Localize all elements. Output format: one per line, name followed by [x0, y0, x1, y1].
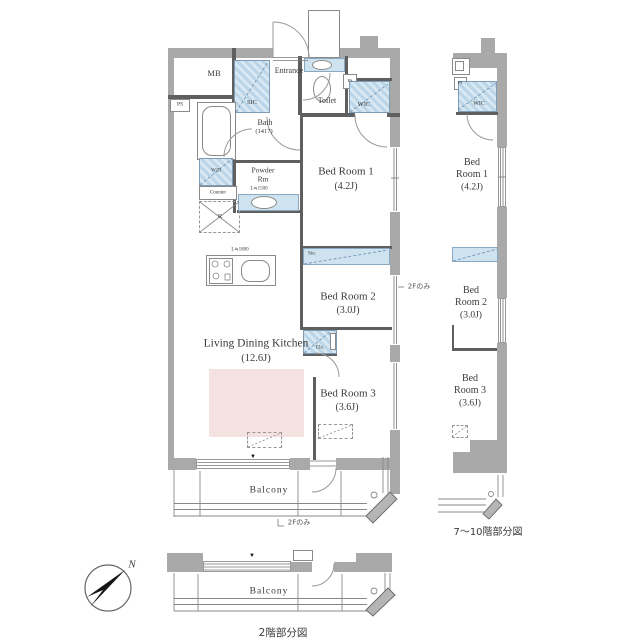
only-2f-bottom-label: 2Fのみ [288, 520, 310, 527]
powder-label-2: Rm [258, 175, 269, 183]
bp-wall-mid-b [334, 562, 356, 572]
bath-label: Bath [257, 119, 272, 127]
mb-label: MB [207, 69, 220, 78]
wall-right-b [390, 212, 400, 275]
wall-bed1-top-a [300, 113, 355, 117]
wall-right-c [390, 345, 400, 362]
bed1-label: Bed Room 1 [318, 167, 374, 178]
wall-hall-toilet [298, 56, 302, 115]
kitchen-sink [241, 260, 270, 282]
bed1-size-label: (4.2J) [334, 182, 357, 192]
kitchen-stove [209, 258, 233, 284]
floor-plan-page: MB PS SIC Entrance Toilet WIC PS Bath (1… [0, 0, 640, 640]
fridge-label: R [218, 214, 222, 221]
powder-sink [251, 196, 277, 209]
rp-ps-label: PS [457, 81, 462, 86]
powder-counter-length: L≒1500 [250, 187, 267, 192]
rp-wall-step [452, 325, 454, 351]
rp-wall-right-a [497, 68, 507, 147]
wall-clo-bottom [303, 354, 337, 356]
right-plan-balcony-railing [438, 475, 503, 519]
bp-wall-left [167, 553, 203, 572]
entrance-label: Entrance [275, 67, 303, 75]
wall-bottom-b [290, 458, 310, 470]
ldk-size-label: (12.6J) [241, 354, 270, 365]
wall-right-d [390, 430, 400, 494]
bp-wall-mid-a [291, 562, 312, 572]
wall-bath-powder [235, 160, 302, 163]
rp-bed2-label-1: Bed [463, 286, 479, 296]
rp-chimney [481, 38, 495, 53]
balcony-label: Balcony [250, 486, 289, 496]
sic-label: SIC [247, 100, 257, 107]
ps-right-label: PS [347, 79, 352, 84]
bp-window-center-marker: ▼ [249, 553, 255, 559]
only-2f-right-label: 2Fのみ [408, 284, 430, 291]
ac-space-bed3 [318, 424, 353, 439]
rp-bed2-size-label: (3.0J) [460, 311, 482, 321]
living-rug [209, 369, 304, 437]
rp-wic-label: WIC [473, 101, 485, 107]
bed2-size-label: (3.0J) [336, 306, 359, 316]
pipe-shaft [308, 10, 340, 58]
toilet-basin [312, 60, 332, 70]
rp-sto-strip [452, 247, 498, 262]
rp-wall-bottom-step [470, 440, 507, 452]
clo-fixture [330, 333, 336, 350]
rp-bed2-label-2: Room 2 [455, 298, 487, 308]
bed3-size-label: (3.6J) [335, 403, 358, 413]
wall-bed1-left [300, 117, 303, 248]
ldk-label: Living Dining Kitchen [204, 338, 309, 350]
bed3-label: Bed Room 3 [320, 389, 376, 400]
bath-size-label: (1417) [255, 129, 272, 136]
wall-top-left [168, 48, 273, 58]
bp-wall-right [356, 553, 392, 572]
rp-bed3-label-2: Room 3 [454, 386, 486, 396]
bp-caption: 2階部分図 [259, 628, 308, 639]
counter-label: Counter [210, 191, 226, 196]
kitchen-length-label: L≒1800 [231, 248, 248, 253]
rp-caption: 7〜10階部分図 [453, 528, 522, 538]
sto-label: Sto. [308, 252, 316, 257]
bathtub [202, 106, 231, 156]
toilet-label: Toilet [318, 97, 337, 105]
rp-window-bed1 [498, 147, 506, 207]
rp-fixture-inner [455, 61, 464, 71]
rp-wic-closet [458, 81, 497, 112]
sto-strip [303, 248, 390, 265]
wall-chimney [360, 36, 378, 48]
wic-label: WIC [358, 102, 371, 109]
compass-icon [85, 565, 131, 611]
rp-bed3-size-label: (3.6J) [459, 399, 481, 409]
clo-label: Clo. [316, 346, 324, 351]
bp-step [293, 550, 313, 561]
rp-ac-space [452, 425, 468, 438]
rp-bed3-label-1: Bed [462, 374, 478, 384]
rp-wall-right-b [497, 207, 507, 298]
wall-right-a [390, 55, 400, 147]
rp-bed1-label-1: Bed [464, 158, 480, 168]
wall-ldk-bed3 [313, 377, 316, 460]
rp-wall-bottom [453, 452, 507, 473]
bp-window [203, 561, 291, 572]
ac-space-ldk [247, 432, 282, 448]
window-center-marker: ▼ [250, 454, 256, 460]
washer-label: W/D [211, 169, 221, 174]
ps-left-label: PS [177, 102, 183, 108]
powder-label-1: Powder [252, 166, 275, 174]
rp-bed1-label-2: Room 1 [456, 170, 488, 180]
rp-window-bed2 [498, 298, 506, 343]
rp-wall-wic-bottom [456, 112, 498, 115]
bp-balcony-label: Balcony [250, 587, 289, 597]
window-ldk [196, 459, 290, 469]
wall-bed1-top-b [387, 113, 400, 117]
rp-wall-bed23 [453, 348, 497, 351]
rp-bed1-size-label: (4.2J) [461, 183, 483, 193]
bed2-label: Bed Room 2 [320, 292, 376, 303]
compass-north-label: N [128, 560, 135, 571]
wall-bottom-a [168, 458, 196, 470]
